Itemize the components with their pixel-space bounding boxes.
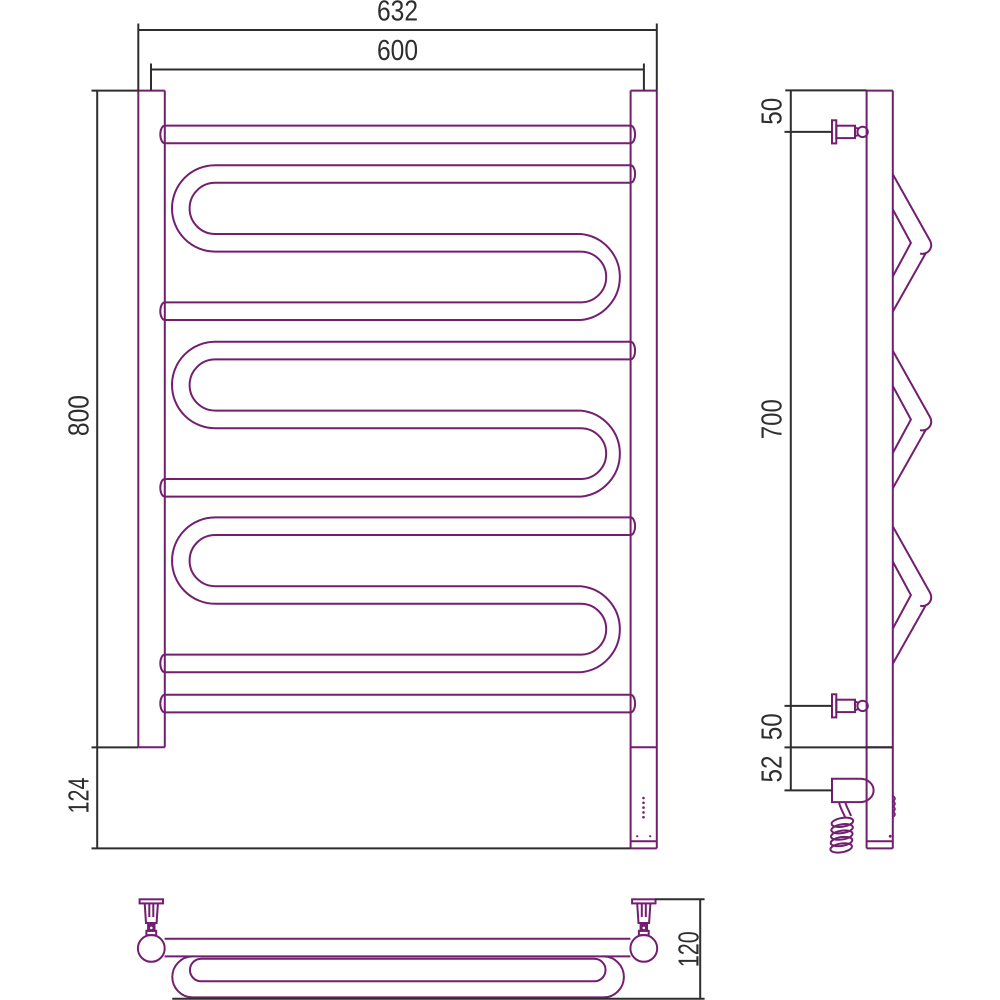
svg-text:120: 120 (673, 931, 705, 967)
svg-text:50: 50 (757, 713, 789, 740)
svg-text:800: 800 (64, 395, 96, 436)
svg-text:52: 52 (757, 756, 789, 783)
svg-text:124: 124 (64, 777, 96, 813)
svg-text:700: 700 (757, 399, 789, 439)
svg-text:632: 632 (377, 0, 418, 28)
svg-text:50: 50 (757, 98, 789, 125)
svg-text:600: 600 (377, 35, 418, 67)
